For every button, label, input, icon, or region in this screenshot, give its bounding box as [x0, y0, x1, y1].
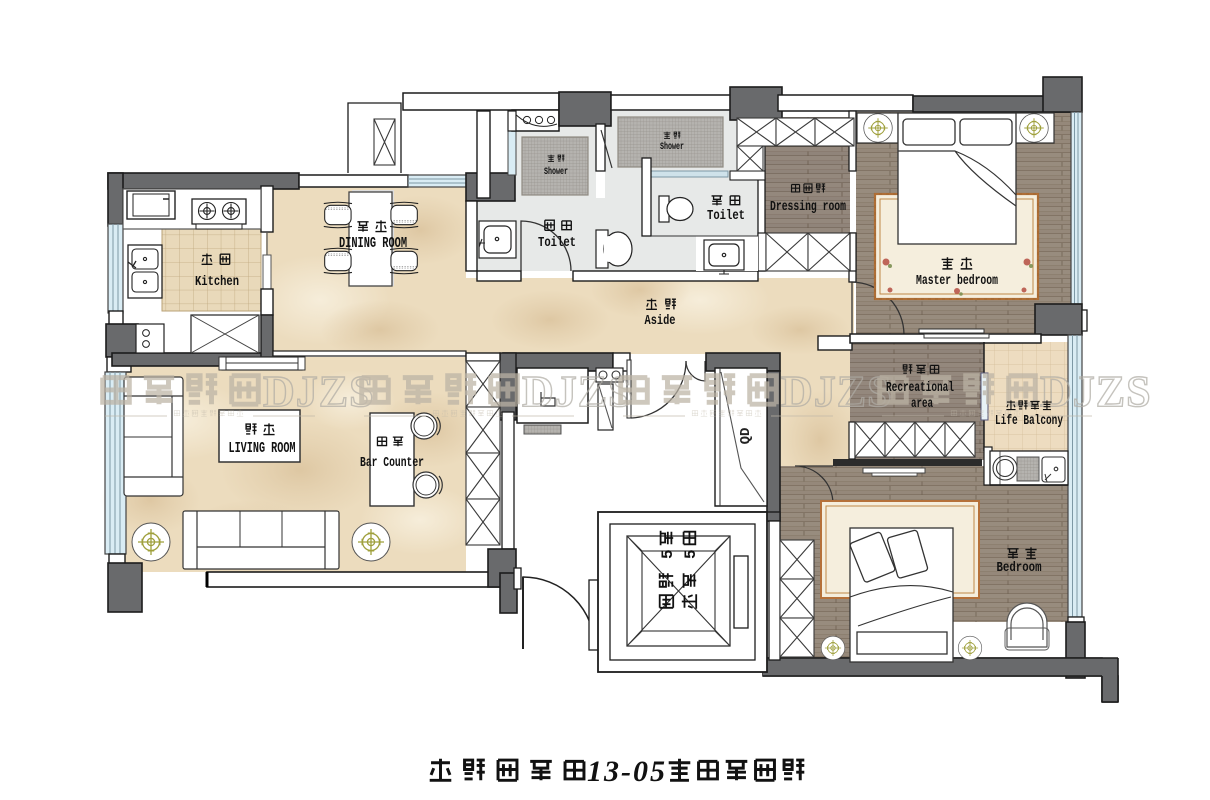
- svg-text:Kitchen: Kitchen: [195, 274, 239, 290]
- svg-text:DJZS: DJZS: [781, 367, 893, 416]
- svg-text:Shower: Shower: [660, 141, 684, 153]
- svg-text:QD: QD: [738, 428, 754, 445]
- svg-text:5: 5: [659, 549, 677, 559]
- svg-text:Toilet: Toilet: [538, 235, 576, 251]
- svg-text:Recreational: Recreational: [886, 381, 954, 396]
- svg-text:Dressing room: Dressing room: [770, 200, 846, 215]
- svg-text:Bedroom: Bedroom: [997, 560, 1042, 576]
- svg-text:DJZS: DJZS: [263, 367, 375, 416]
- svg-text:Shower: Shower: [544, 166, 568, 178]
- svg-text:Toilet: Toilet: [707, 209, 745, 224]
- svg-text:13-05: 13-05: [587, 755, 667, 788]
- svg-text:LIVING ROOM: LIVING ROOM: [229, 441, 296, 457]
- svg-text:DJZS: DJZS: [1040, 367, 1152, 416]
- svg-text:DJZS: DJZS: [522, 367, 634, 416]
- svg-text:Master bedroom: Master bedroom: [916, 273, 998, 289]
- svg-text:Bar Counter: Bar Counter: [360, 455, 424, 471]
- svg-text:5: 5: [682, 549, 700, 559]
- svg-text:Life Balcony: Life Balcony: [995, 414, 1063, 429]
- svg-text:Aside: Aside: [645, 313, 676, 329]
- svg-text:DINING ROOM: DINING ROOM: [339, 236, 407, 252]
- svg-text:area: area: [911, 397, 933, 412]
